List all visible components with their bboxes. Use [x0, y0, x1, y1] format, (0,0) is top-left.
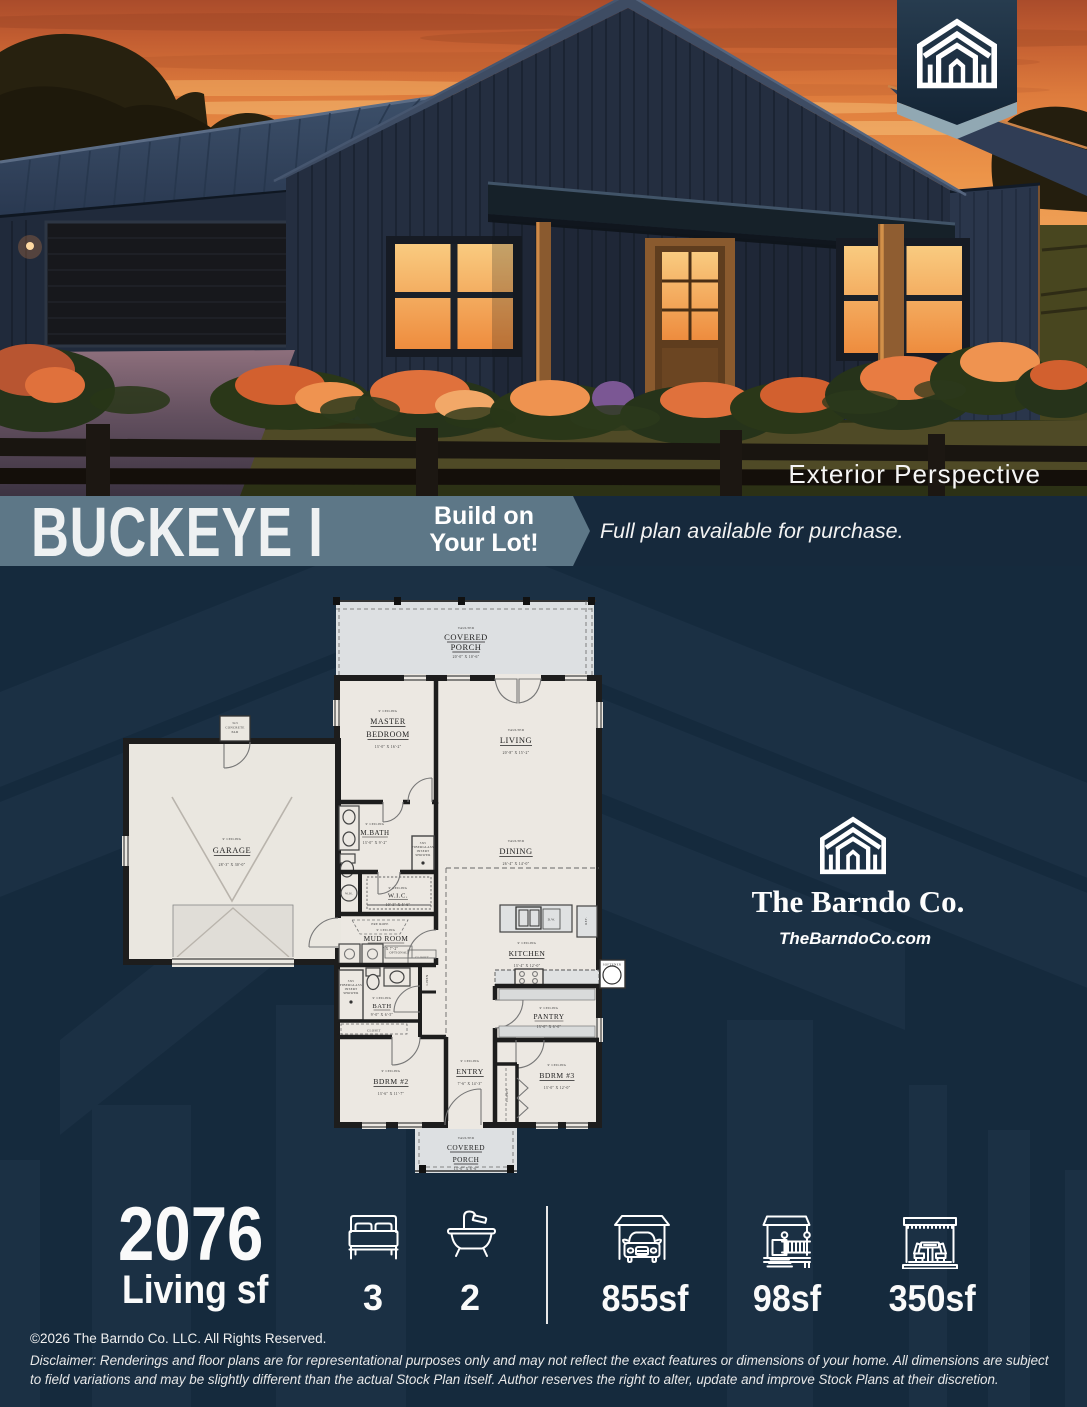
svg-text:D.W.: D.W. [548, 918, 556, 922]
svg-text:9' CEILING: 9' CEILING [382, 1069, 401, 1073]
svg-text:9' CEILING: 9' CEILING [548, 1063, 567, 1067]
svg-text:3x3: 3x3 [232, 721, 238, 725]
svg-text:VAULTED: VAULTED [458, 1136, 475, 1140]
svg-text:9'-0" X 6'-5": 9'-0" X 6'-5" [371, 1013, 394, 1017]
svg-text:REF.: REF. [584, 917, 588, 925]
svg-text:13'-0" X 6'-0": 13'-0" X 6'-0" [537, 1025, 562, 1029]
svg-text:CLOSET: CLOSET [367, 1029, 381, 1033]
svg-text:9' CEILING: 9' CEILING [223, 837, 242, 841]
svg-text:MUD ROOM: MUD ROOM [364, 934, 409, 943]
svg-text:LINEN: LINEN [425, 974, 429, 985]
svg-text:13'-0" X 16'-2": 13'-0" X 16'-2" [375, 745, 402, 749]
svg-text:SOFTENER: SOFTENER [603, 963, 622, 967]
svg-text:28'-3" X 30'-0": 28'-3" X 30'-0" [219, 863, 246, 867]
svg-text:W.H.: W.H. [345, 892, 353, 896]
svg-text:13'-0" X 12'-0": 13'-0" X 12'-0" [544, 1086, 571, 1090]
svg-text:BATH: BATH [372, 1003, 391, 1010]
svg-text:9' CEILING: 9' CEILING [389, 886, 408, 890]
svg-text:9' CEILING: 9' CEILING [366, 822, 385, 826]
svg-text:VAULTED: VAULTED [458, 626, 475, 630]
svg-text:OPTIONAL: OPTIONAL [389, 951, 407, 955]
svg-text:BEDROOM: BEDROOM [366, 730, 410, 739]
svg-text:LIVING: LIVING [500, 735, 532, 745]
svg-text:SHOWER: SHOWER [415, 853, 431, 857]
svg-text:GARAGE: GARAGE [213, 845, 251, 855]
svg-text:VAULTED: VAULTED [508, 728, 525, 732]
svg-text:13'-4" X 12'-0": 13'-4" X 12'-0" [514, 964, 541, 968]
svg-text:20'-8" X 15'-2": 20'-8" X 15'-2" [503, 751, 530, 755]
svg-text:13'-6" X 11'-7": 13'-6" X 11'-7" [378, 1092, 405, 1096]
svg-text:TheBarndoCo.com: TheBarndoCo.com [779, 929, 931, 948]
svg-text:COVERED: COVERED [447, 1143, 485, 1152]
svg-text:BDRM #2: BDRM #2 [373, 1077, 408, 1086]
svg-text:9' CEILING: 9' CEILING [461, 1059, 480, 1063]
svg-text:9' CEILING: 9' CEILING [379, 709, 398, 713]
svg-text:PANTRY: PANTRY [533, 1012, 564, 1021]
svg-text:9' CEILING: 9' CEILING [540, 1006, 559, 1010]
svg-text:CLOSET: CLOSET [505, 1088, 509, 1102]
svg-text:13'-0" X 9'-2": 13'-0" X 9'-2" [363, 841, 388, 845]
svg-text:9' CEILING: 9' CEILING [373, 996, 392, 1000]
svg-text:MASTER: MASTER [370, 717, 406, 726]
svg-text:CONCRETE: CONCRETE [225, 726, 244, 730]
svg-text:9' CEILING: 9' CEILING [377, 928, 396, 932]
svg-text:W.I.C.: W.I.C. [388, 893, 408, 900]
svg-text:DINING: DINING [499, 846, 532, 856]
svg-text:7'-6" X 14'-3": 7'-6" X 14'-3" [458, 1082, 483, 1086]
svg-text:ENTRY: ENTRY [456, 1067, 483, 1076]
svg-text:PORCH: PORCH [451, 642, 482, 652]
svg-text:The Barndo Co.: The Barndo Co. [752, 884, 965, 919]
svg-text:SHOWER: SHOWER [343, 991, 359, 995]
svg-text:PRE ROPE: PRE ROPE [371, 922, 388, 926]
svg-text:BDRM #3: BDRM #3 [539, 1071, 574, 1080]
svg-text:26'-4" X 14'-0": 26'-4" X 14'-0" [503, 862, 530, 866]
svg-text:10'-3" X 5'-6": 10'-3" X 5'-6" [386, 903, 411, 907]
svg-text:M.BATH: M.BATH [360, 829, 389, 837]
svg-text:Exterior Perspective: Exterior Perspective [788, 459, 1041, 489]
svg-text:13'-0" X 6'-6": 13'-0" X 6'-6" [454, 1167, 479, 1171]
svg-text:PAD: PAD [232, 730, 239, 734]
svg-text:9' CEILING: 9' CEILING [518, 941, 537, 945]
svg-text:PORCH: PORCH [453, 1155, 480, 1164]
svg-text:KITCHEN: KITCHEN [509, 949, 546, 958]
svg-text:20'-0" X 10'-6": 20'-0" X 10'-6" [453, 655, 480, 659]
svg-text:COVERED: COVERED [444, 632, 488, 642]
svg-text:VAULTED: VAULTED [508, 839, 525, 843]
